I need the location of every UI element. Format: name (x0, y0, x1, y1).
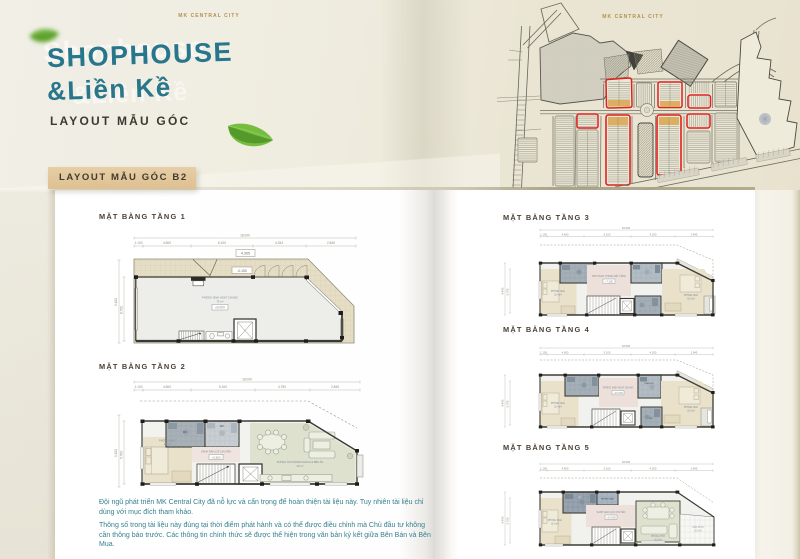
svg-text:4.200: 4.200 (650, 351, 657, 355)
svg-text:9.400: 9.400 (501, 287, 505, 294)
svg-text:4.600: 4.600 (562, 467, 569, 471)
svg-text:5.100: 5.100 (604, 233, 611, 237)
svg-text:6.700: 6.700 (120, 306, 124, 314)
svg-text:4.305: 4.305 (241, 252, 250, 256)
svg-text:4.200: 4.200 (650, 233, 657, 237)
svg-text:18.000: 18.000 (242, 377, 252, 381)
svg-text:9.400: 9.400 (501, 399, 505, 406)
svg-text:SINH HOẠT CHUNG KẾT CỘNG: SINH HOẠT CHUNG KẾT CỘNG (592, 275, 626, 278)
svg-text:5.700: 5.700 (506, 400, 510, 407)
svg-text:(14 m²): (14 m²) (554, 293, 562, 296)
svg-text:9.400: 9.400 (114, 449, 118, 457)
svg-text:1.100: 1.100 (540, 467, 547, 471)
svg-text:+3.800: +3.800 (211, 455, 221, 459)
svg-text:5.700: 5.700 (506, 517, 510, 524)
svg-text:(12 m²): (12 m²) (551, 522, 559, 525)
svg-text:(10 m²): (10 m²) (694, 529, 702, 532)
svg-text:PHÒNG THỜ: PHÒNG THỜ (651, 535, 665, 538)
svg-text:PHÒNG GIẶT: PHÒNG GIẶT (601, 498, 615, 501)
svg-text:5.100: 5.100 (604, 351, 611, 355)
svg-text:PHÒNG SINH HOẠT CHUNG: PHÒNG SINH HOẠT CHUNG (603, 387, 634, 390)
svg-text:SẢNH GIAO LƯU CHUYỂN: SẢNH GIAO LƯU CHUYỂN (597, 511, 626, 514)
svg-text:WC: WC (220, 425, 224, 428)
svg-text:4.600: 4.600 (562, 233, 569, 237)
svg-text:+14.000: +14.000 (606, 515, 616, 519)
svg-text:WC: WC (649, 418, 653, 420)
svg-text:PHÒNG NGỦ: PHÒNG NGỦ (684, 294, 699, 297)
svg-text:SÂN PHƠI: SÂN PHƠI (692, 526, 704, 529)
svg-text:4.600: 4.600 (163, 385, 171, 389)
svg-text:1.100: 1.100 (135, 385, 143, 389)
svg-text:5.700: 5.700 (506, 288, 510, 295)
svg-text:(14 m²): (14 m²) (554, 405, 562, 408)
svg-text:14 m²: 14 m² (164, 442, 171, 446)
svg-text:9.400: 9.400 (501, 516, 505, 523)
svg-text:5.100: 5.100 (219, 385, 227, 389)
svg-text:75 m²: 75 m² (217, 300, 224, 304)
svg-text:PHÒNG NGỦ: PHÒNG NGỦ (684, 406, 699, 409)
svg-text:5.100: 5.100 (604, 467, 611, 471)
svg-text:2.845: 2.845 (691, 467, 698, 471)
svg-text:2.845: 2.845 (331, 385, 339, 389)
svg-text:4.254: 4.254 (275, 241, 283, 245)
svg-text:29 m²: 29 m² (297, 464, 304, 468)
svg-text:PHÒNG NGỦ: PHÒNG NGỦ (551, 290, 566, 293)
svg-text:4.600: 4.600 (562, 351, 569, 355)
svg-text:18.000: 18.000 (622, 226, 631, 230)
svg-text:PHÒNG NGỦ: PHÒNG NGỦ (551, 402, 566, 405)
svg-text:PHÒNG NGỦ: PHÒNG NGỦ (548, 519, 563, 522)
svg-text:18.000: 18.000 (240, 233, 250, 237)
svg-text:2.845: 2.845 (327, 241, 335, 245)
svg-text:-0.150: -0.150 (237, 269, 247, 273)
svg-text:18.000: 18.000 (622, 460, 631, 464)
svg-text:4.600: 4.600 (163, 241, 171, 245)
svg-text:+7.200: +7.200 (605, 279, 614, 283)
svg-text:+10.600: +10.600 (613, 391, 623, 395)
svg-text:4.200: 4.200 (650, 467, 657, 471)
svg-text:THAY ĐỒ: THAY ĐỒ (644, 382, 654, 385)
svg-text:4.750: 4.750 (278, 385, 286, 389)
svg-text:5.700: 5.700 (120, 451, 124, 459)
svg-text:(16 m²): (16 m²) (687, 297, 695, 300)
svg-text:1.100: 1.100 (135, 241, 143, 245)
svg-text:18.000: 18.000 (622, 344, 631, 348)
svg-text:1.100: 1.100 (540, 233, 547, 237)
svg-text:(16 m²): (16 m²) (687, 409, 695, 412)
svg-text:WC: WC (183, 431, 187, 434)
svg-text:6.100: 6.100 (218, 241, 226, 245)
svg-text:1.100: 1.100 (540, 351, 547, 355)
svg-text:±0.000: ±0.000 (215, 306, 225, 310)
svg-text:2.845: 2.845 (691, 233, 698, 237)
svg-text:2.845: 2.845 (691, 351, 698, 355)
svg-text:9.400: 9.400 (114, 298, 118, 306)
svg-text:WC: WC (578, 497, 582, 499)
